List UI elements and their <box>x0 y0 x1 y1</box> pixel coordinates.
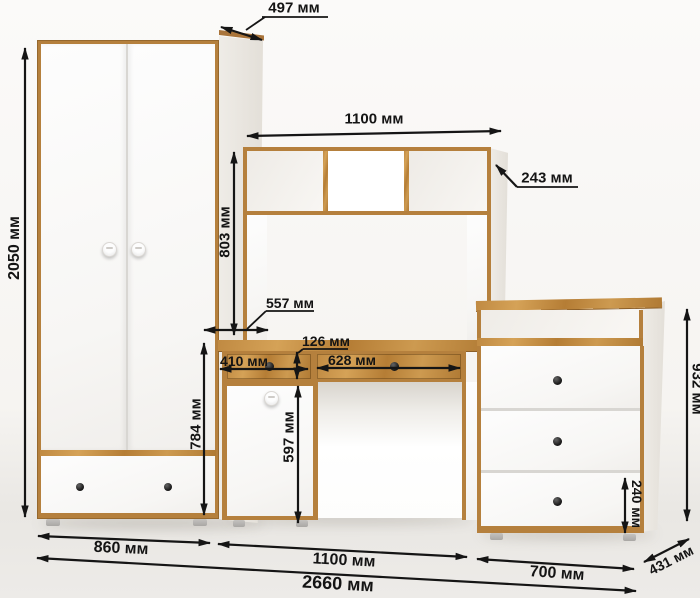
dim-label-door-height: 597 мм <box>281 411 298 462</box>
dim-label-hutch-depth: 243 мм <box>521 170 572 187</box>
chest-drawer-1-knob <box>553 376 562 385</box>
furniture-dimension-diagram: 2050 мм 497 мм 1100 мм 243 мм 803 мм 557… <box>0 0 700 598</box>
dim-label-desk-depth: 557 мм <box>266 295 314 311</box>
hutch-shelf-row <box>243 147 491 215</box>
chest-foot-left <box>490 533 503 540</box>
wardrobe-drawer-knob-right <box>164 483 172 491</box>
chest-drawer-2-knob <box>553 437 562 446</box>
wardrobe-foot-right <box>193 519 207 526</box>
hutch-upright-left <box>243 215 267 340</box>
wardrobe-drawer-knob-left <box>76 483 84 491</box>
wardrobe-door-right-handle <box>131 242 146 257</box>
dim-leader-wardrobe-depth <box>246 17 265 30</box>
wardrobe-bottom-drawer <box>41 456 215 513</box>
dim-label-chest-height: 932 мм <box>689 363 700 414</box>
chest-top <box>476 297 662 311</box>
desk-foot-left <box>233 520 245 527</box>
dim-label-wardrobe-depth: 497 мм <box>268 0 319 17</box>
hutch-compartment-middle-open <box>328 151 404 211</box>
dim-label-desk-width: 1100 мм <box>312 550 376 571</box>
dim-label-drawer-height: 126 мм <box>302 333 350 349</box>
dim-label-total-width: 2660 мм <box>302 572 375 597</box>
dim-label-hutch-height: 803 мм <box>217 206 234 257</box>
dim-label-wardrobe-width: 860 мм <box>93 539 149 559</box>
dim-label-chest-drawer-height: 240 мм <box>629 480 645 528</box>
chest-drawer-3-knob <box>553 497 562 506</box>
dim-label-drawer-left: 410 мм <box>220 353 268 369</box>
desk-pedestal-door-handle <box>264 391 279 406</box>
hutch-compartment-right <box>409 151 487 211</box>
desk-kneehole <box>318 382 462 518</box>
dim-label-chest-width: 700 мм <box>529 563 585 585</box>
chest-shelf-board <box>477 338 643 346</box>
dim-label-hutch-width: 1100 мм <box>345 111 404 128</box>
desk-foot-right <box>296 520 308 527</box>
desk-top <box>218 340 490 351</box>
dim-label-wardrobe-height: 2050 мм <box>6 216 24 280</box>
chest-open-shelf <box>477 310 643 338</box>
dim-line-hutch-width <box>247 131 501 136</box>
desk-drawer-right-knob <box>390 362 399 371</box>
dim-label-pedestal-height: 784 мм <box>188 398 205 449</box>
wardrobe-door-left-handle <box>102 242 117 257</box>
dim-label-drawer-right: 628 мм <box>328 352 376 368</box>
wardrobe-foot-left <box>46 519 60 526</box>
hutch-compartment-left <box>247 151 323 211</box>
dim-label-chest-depth: 431 мм <box>646 542 696 578</box>
chest-foot-right <box>623 534 636 541</box>
